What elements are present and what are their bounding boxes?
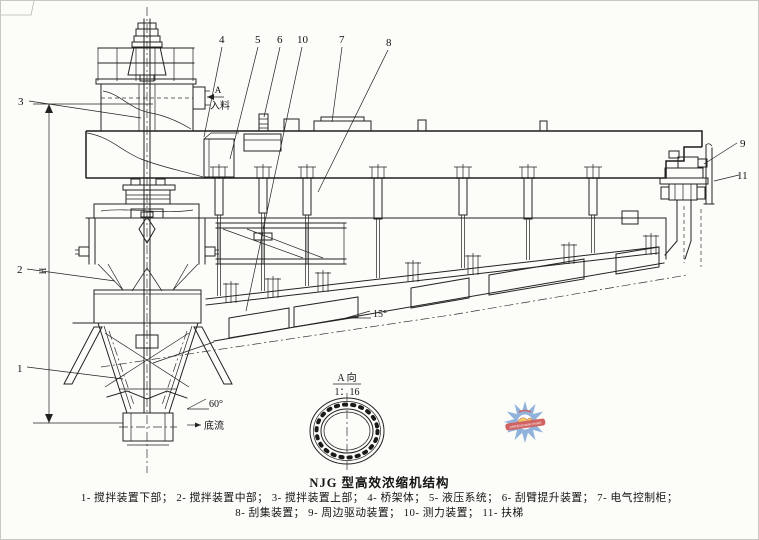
detail-view-label: A 向 bbox=[337, 371, 356, 384]
scanned-technical-figure: H A 入料 3 2 1 4 5 6 10 7 8 9 11 15° 60° 底… bbox=[0, 0, 759, 540]
callout-leaders bbox=[27, 47, 739, 379]
caption: NJG 型高效浓缩机结构 1- 搅拌装置下部； 2- 搅拌装置中部； 3- 搅拌… bbox=[1, 472, 758, 520]
scan-artifact bbox=[1, 1, 34, 15]
callout-8: 8 bbox=[386, 37, 392, 49]
callout-1: 1 bbox=[17, 363, 23, 375]
callout-7: 7 bbox=[339, 34, 345, 46]
flange-detail-view: A 向 1：16 bbox=[310, 371, 384, 471]
underflow-cone bbox=[98, 323, 209, 445]
watermark-logo: JINPENGMACHINE bbox=[504, 401, 546, 443]
thickener-structure-drawing: H A 入料 3 2 1 4 5 6 10 7 8 9 11 15° 60° 底… bbox=[1, 1, 759, 540]
feed-annotation: A 入料 bbox=[207, 85, 230, 112]
rake-truss bbox=[206, 223, 658, 305]
bridge-girder bbox=[86, 114, 702, 178]
callout-2: 2 bbox=[17, 264, 23, 276]
feed-view-letter: A bbox=[215, 85, 222, 95]
callout-4: 4 bbox=[219, 34, 225, 46]
feed-label: 入料 bbox=[210, 99, 230, 112]
callout-10: 10 bbox=[297, 34, 309, 46]
detail-view-scale: 1：16 bbox=[335, 387, 360, 398]
underflow-label: 底流 bbox=[204, 419, 224, 432]
callout-5: 5 bbox=[255, 34, 261, 46]
callout-11: 11 bbox=[737, 170, 748, 182]
hanger-rods bbox=[210, 164, 659, 303]
cone-angle-label: 60° bbox=[209, 399, 223, 410]
legend-line-1: 1- 搅拌装置下部； 2- 搅拌装置中部； 3- 搅拌装置上部； 4- 桥架体；… bbox=[1, 491, 758, 506]
ladder bbox=[704, 144, 714, 204]
callout-3: 3 bbox=[18, 96, 24, 108]
callout-6: 6 bbox=[277, 34, 283, 46]
legend-line-2: 8- 刮集装置； 9- 周边驱动装置； 10- 测力装置； 11- 扶梯 bbox=[1, 506, 758, 521]
slope-label: 15° bbox=[373, 309, 387, 320]
callout-9: 9 bbox=[740, 138, 746, 150]
scraper-blades bbox=[101, 247, 687, 367]
figure-title: NJG 型高效浓缩机结构 bbox=[1, 472, 758, 491]
